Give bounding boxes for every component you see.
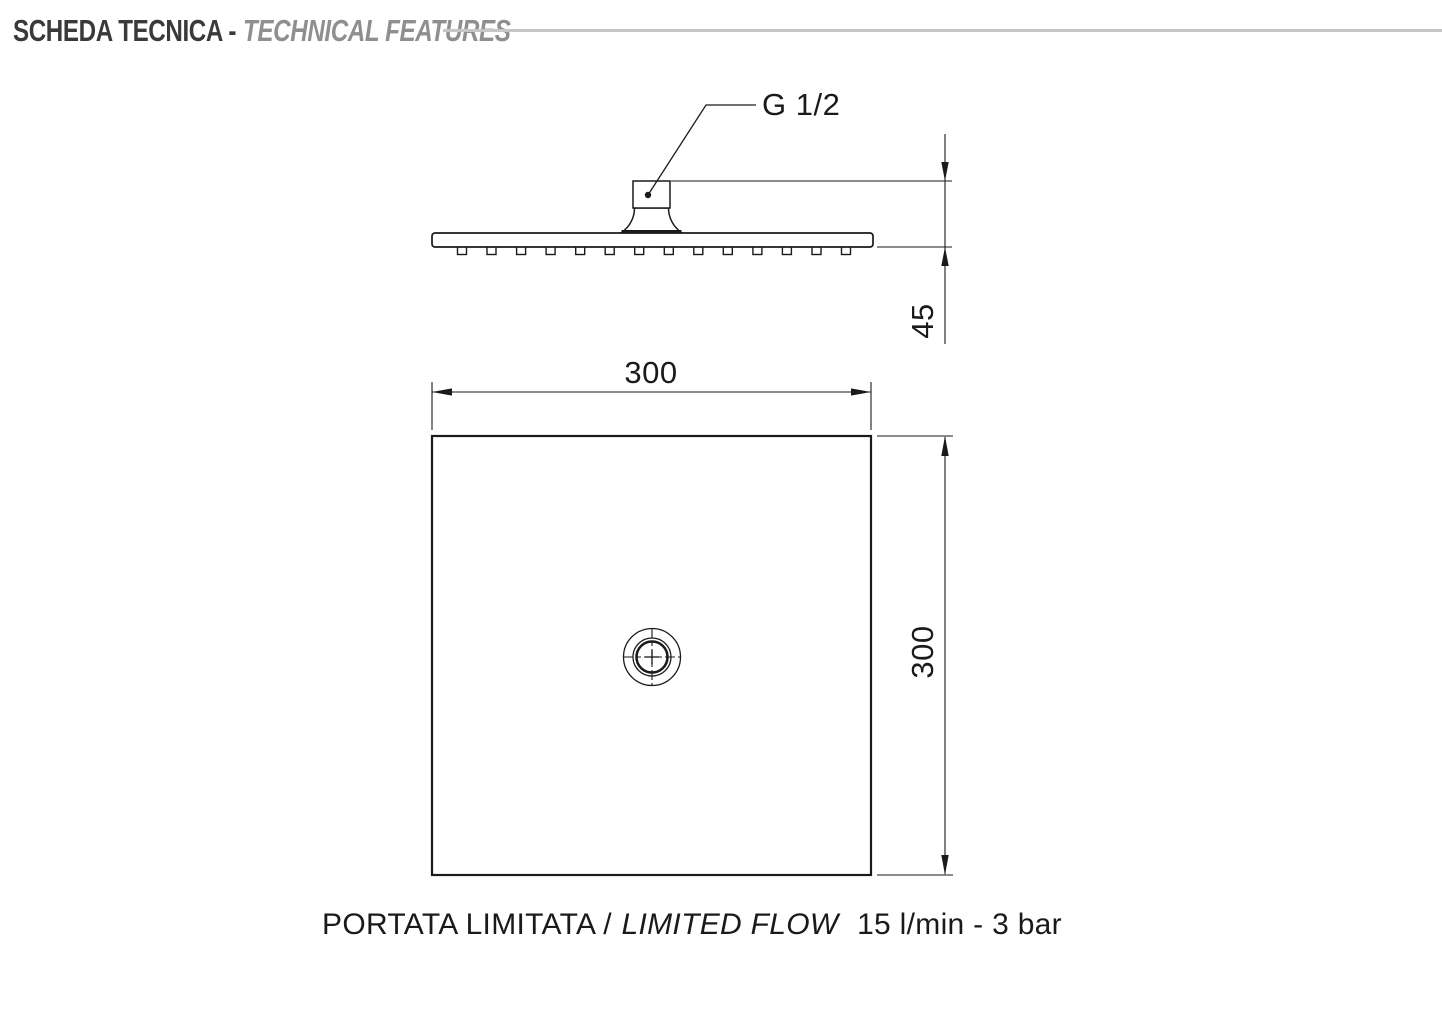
shower-plate — [432, 233, 873, 247]
arrowhead-down — [941, 162, 948, 181]
height-dim-label: 45 — [905, 303, 940, 338]
arrowhead-up — [941, 247, 948, 266]
top-view — [432, 436, 871, 875]
connector-block — [633, 181, 670, 208]
connection-size-label: G 1/2 — [762, 87, 840, 122]
flow-caption-italian: PORTATA LIMITATA / — [322, 908, 612, 941]
side-view: G 1/2 — [432, 87, 873, 255]
depth-dim-label: 300 — [905, 625, 940, 678]
flow-caption-english: LIMITED FLOW — [622, 908, 839, 941]
dimension-depth-300: 300 — [877, 436, 953, 875]
connector-dome — [622, 208, 682, 233]
arrowhead-down — [941, 855, 948, 875]
technical-sheet-page: SCHEDA TECNICA -TECHNICAL FEATURES — [0, 0, 1442, 1016]
arrowhead-left — [432, 388, 452, 395]
technical-drawing: G 1/2 45 — [0, 0, 1442, 1016]
dimension-width-300: 300 — [432, 355, 871, 430]
flow-caption: PORTATA LIMITATA /LIMITED FLOW15 l/min -… — [322, 908, 1062, 942]
arrowhead-right — [851, 388, 871, 395]
flow-caption-value: 15 l/min - 3 bar — [857, 908, 1062, 941]
width-dim-label: 300 — [624, 355, 677, 390]
water-inlet — [623, 628, 681, 686]
arrowhead-up — [941, 436, 948, 456]
